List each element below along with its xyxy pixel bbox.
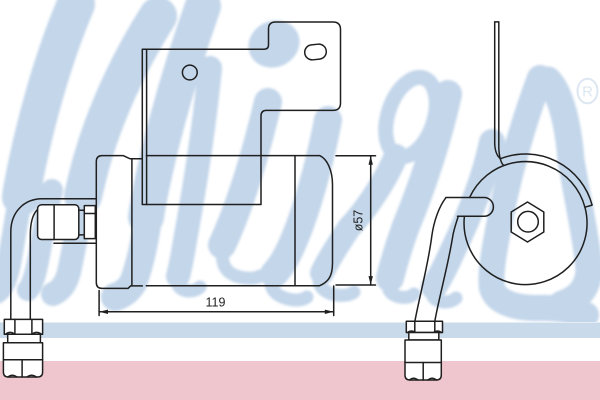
svg-text:119: 119 <box>206 296 226 310</box>
svg-text:ø57: ø57 <box>352 210 366 232</box>
svg-text:R: R <box>582 84 593 101</box>
